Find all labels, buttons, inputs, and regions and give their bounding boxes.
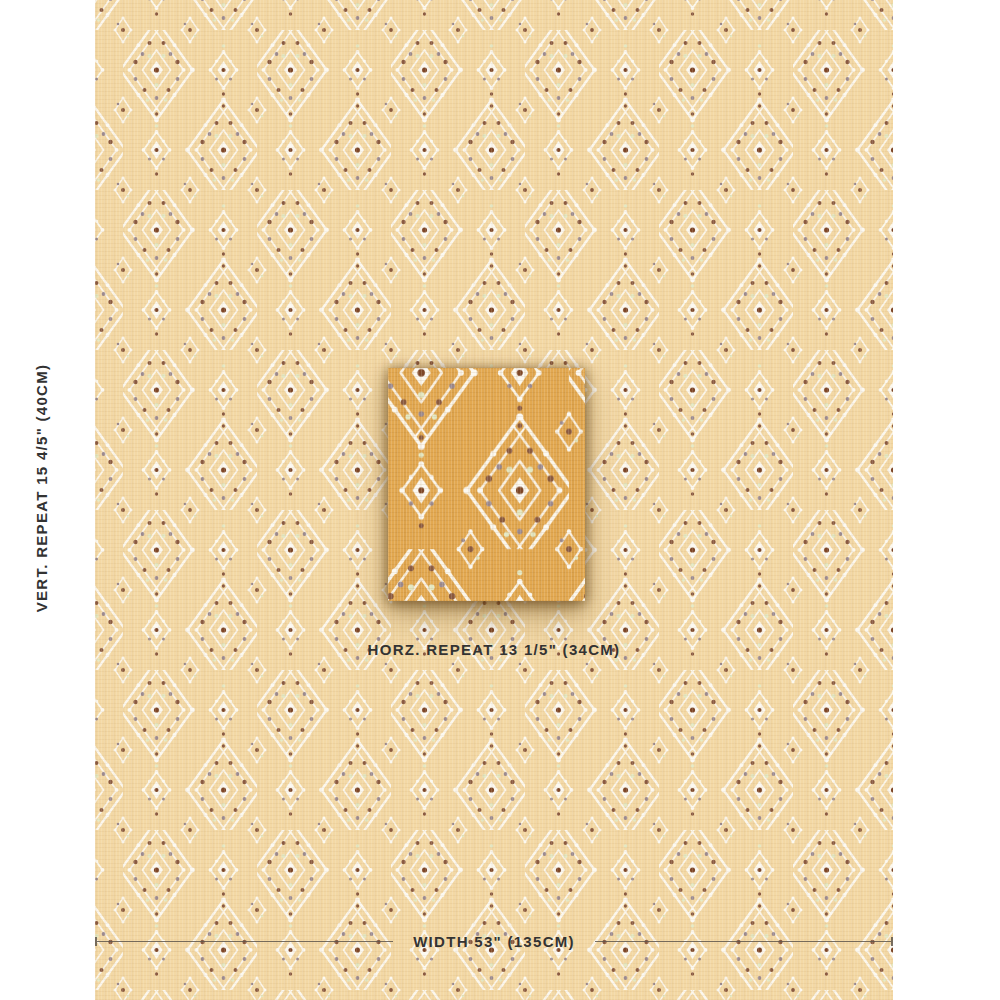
horizontal-repeat-label: HORZ. REPEAT 13 1/5" (34CM) [368, 641, 621, 658]
width-label: WIDTH 53" (135CM) [413, 934, 575, 949]
width-measure: WIDTH 53" (135CM) [95, 933, 893, 949]
horizontal-repeat-caption: HORZ. REPEAT 13 1/5" (34CM) [95, 641, 893, 659]
measure-tick-right [891, 937, 893, 946]
repeat-detail-pattern-graphic [388, 368, 585, 601]
vertical-repeat-label: VERT. REPEAT 15 4/5" (40CM) [34, 364, 49, 613]
fabric-product-image: VERT. REPEAT 15 4/5" (40CM) HORZ. REPEAT… [0, 0, 1000, 1000]
measure-line-right [595, 941, 891, 942]
measure-line-left [97, 941, 393, 942]
repeat-detail-swatch [388, 368, 585, 601]
